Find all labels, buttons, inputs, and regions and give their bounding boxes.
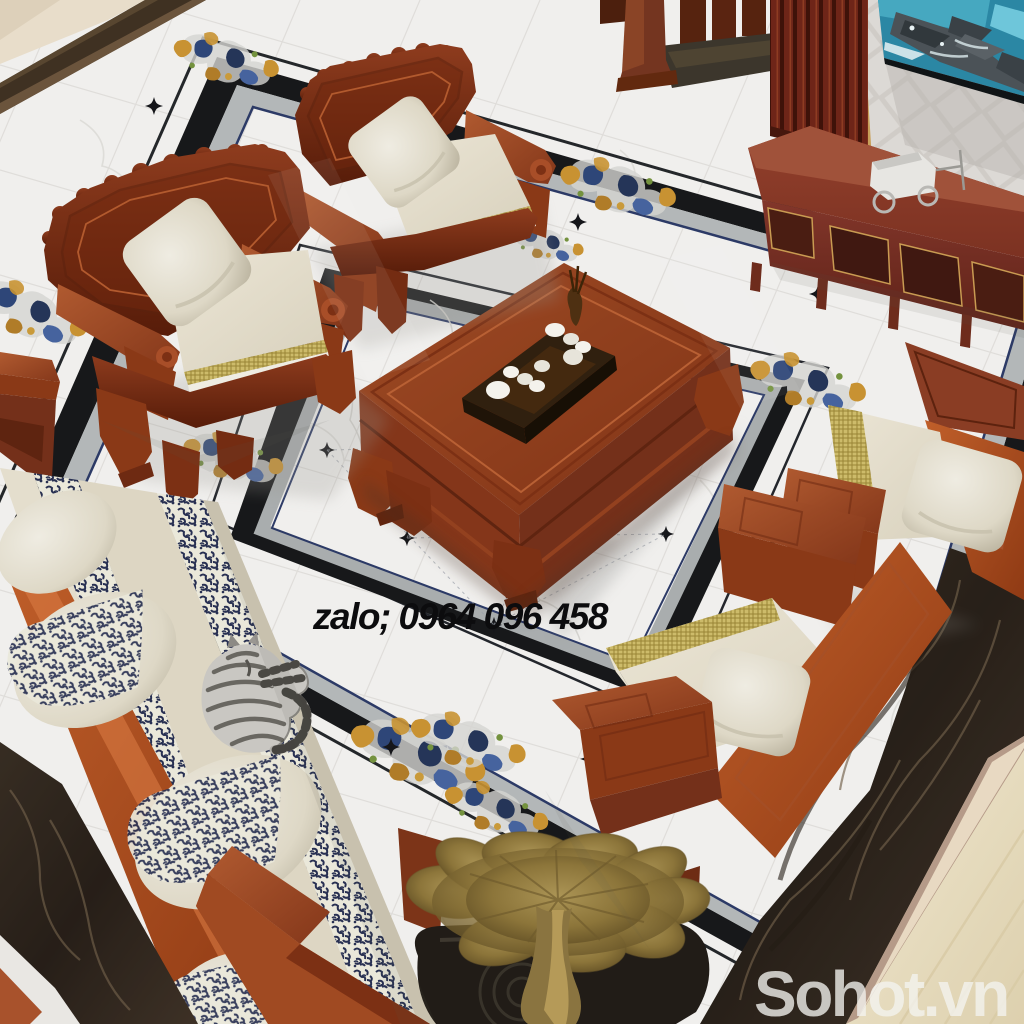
svg-text:Sohot.vn: Sohot.vn xyxy=(754,958,1008,1024)
svg-text:zalo; 0964 096 458: zalo; 0964 096 458 xyxy=(312,596,609,637)
